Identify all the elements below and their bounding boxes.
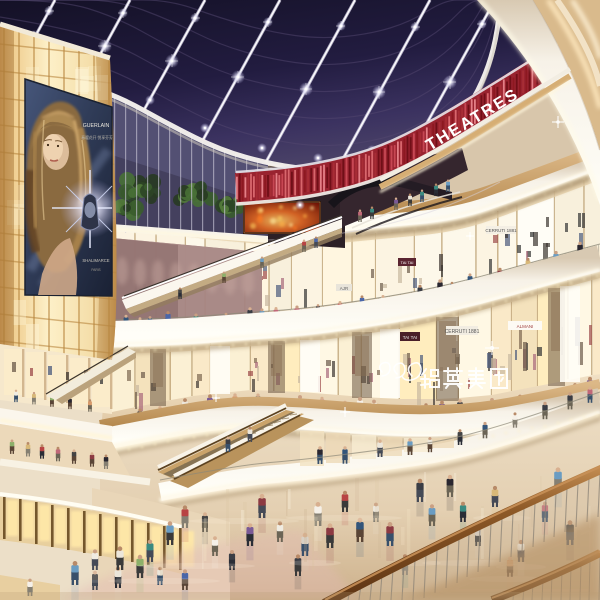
svg-text:TAI TAI: TAI TAI xyxy=(401,260,414,265)
svg-text:TAI TAI: TAI TAI xyxy=(403,335,418,340)
svg-text:CERRUTI 1881: CERRUTI 1881 xyxy=(485,228,517,233)
svg-text:CERRUTI 1881: CERRUTI 1881 xyxy=(445,329,480,335)
svg-text:PARIS: PARIS xyxy=(91,268,100,272)
svg-text:ALMANI: ALMANI xyxy=(517,324,534,329)
svg-text:GUERLAIN: GUERLAIN xyxy=(83,123,110,129)
svg-text:SHALIMARCE: SHALIMARCE xyxy=(82,258,109,263)
svg-text:春暖花开 悦享芬芳: 春暖花开 悦享芬芳 xyxy=(81,135,113,140)
svg-text:AJR: AJR xyxy=(340,286,349,291)
